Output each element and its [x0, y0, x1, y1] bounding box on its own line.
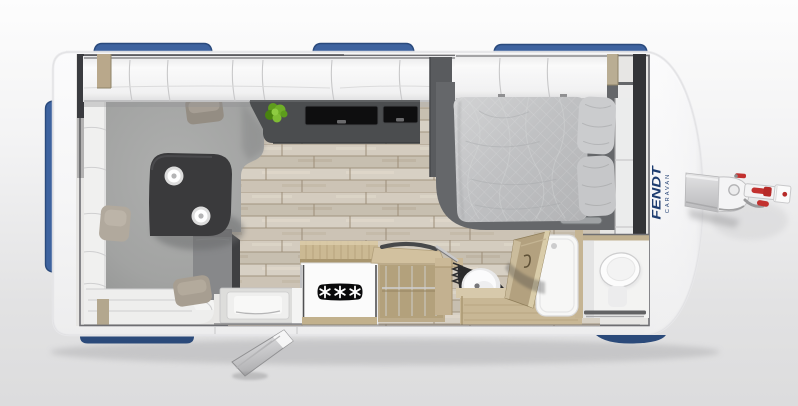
svg-text:CARAVAN: CARAVAN — [665, 173, 671, 213]
svg-text:FENDT: FENDT — [650, 165, 664, 220]
